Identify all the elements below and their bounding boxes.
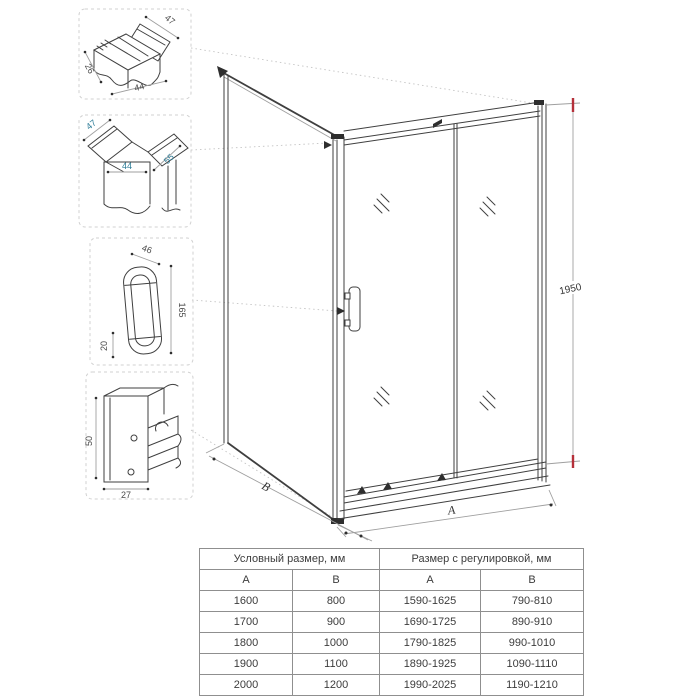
cell-b: 1100 xyxy=(293,654,380,675)
dim-44-top: 44 xyxy=(133,81,145,93)
size-table: Условный размер, мм Размер с регулировко… xyxy=(199,548,584,696)
cell-a-adj: 1690-1725 xyxy=(380,612,481,633)
cell-b: 1200 xyxy=(293,675,380,696)
header-nominal-size: Условный размер, мм xyxy=(200,549,380,570)
dim-47-top: 47 xyxy=(163,13,177,27)
cell-a-adj: 1590-1625 xyxy=(380,591,481,612)
dim-20: 20 xyxy=(99,341,109,351)
dim-27: 27 xyxy=(121,490,131,500)
cell-b-adj: 1090-1110 xyxy=(481,654,584,675)
wall-profile-right xyxy=(538,104,546,482)
door-handle xyxy=(337,287,360,331)
bottom-sill xyxy=(338,462,550,519)
cell-a-adj: 1790-1825 xyxy=(380,633,481,654)
cell-a-adj: 1890-1925 xyxy=(380,654,481,675)
height-dimension: 1950 xyxy=(546,98,585,468)
dim-47-left: 47 xyxy=(84,118,98,132)
label-b: B xyxy=(259,479,273,495)
table-row: 1600 800 1590-1625 790-810 xyxy=(200,591,584,612)
col-header-a-adjusted: A xyxy=(380,570,481,591)
arrow-corner-post xyxy=(324,141,332,149)
detail-box-top-profile: 47 26 44 xyxy=(79,9,191,99)
cell-a: 2000 xyxy=(200,675,293,696)
side-panel xyxy=(217,66,338,523)
table-row: 1900 1100 1890-1925 1090-1110 xyxy=(200,654,584,675)
rail-end-cap xyxy=(534,100,544,105)
table-row: 1800 1000 1790-1825 990-1010 xyxy=(200,633,584,654)
dim-46: 46 xyxy=(141,243,154,256)
label-a: A xyxy=(446,503,457,518)
col-header-b-adjusted: B xyxy=(481,570,584,591)
table-row: 1700 900 1690-1725 890-910 xyxy=(200,612,584,633)
dim-165: 165 xyxy=(177,302,187,317)
glass-marks xyxy=(374,194,495,410)
detail-box-wall-profile: 50 27 xyxy=(84,372,193,500)
header-adjusted-size: Размер с регулировкой, мм xyxy=(380,549,584,570)
cell-b-adj: 1190-1210 xyxy=(481,675,584,696)
cell-a: 1900 xyxy=(200,654,293,675)
corner-post xyxy=(324,134,344,524)
cell-b-adj: 790-810 xyxy=(481,591,584,612)
arrow-top-left xyxy=(217,66,228,78)
col-header-b-nominal: B xyxy=(293,570,380,591)
table-row: 2000 1200 1990-2025 1190-1210 xyxy=(200,675,584,696)
dim-50: 50 xyxy=(84,436,94,446)
cell-a: 1800 xyxy=(200,633,293,654)
detail-box-handle: 46 165 20 xyxy=(90,238,193,365)
col-header-a-nominal: A xyxy=(200,570,293,591)
detail-box-corner-profile: 47 44 55 xyxy=(79,115,191,227)
cell-b: 900 xyxy=(293,612,380,633)
cell-a: 1700 xyxy=(200,612,293,633)
cell-a: 1600 xyxy=(200,591,293,612)
cell-b: 1000 xyxy=(293,633,380,654)
depth-dimension-b: B xyxy=(206,444,372,541)
dim-44-mid: 44 xyxy=(122,161,132,171)
roller xyxy=(357,486,366,494)
cell-b-adj: 990-1010 xyxy=(481,633,584,654)
leader-lines xyxy=(191,48,538,516)
post-top-cap xyxy=(331,134,344,139)
cell-a-adj: 1990-2025 xyxy=(380,675,481,696)
technical-drawing-page: 47 26 44 47 44 xyxy=(0,0,700,700)
sliding-doors xyxy=(337,124,538,491)
cell-b: 800 xyxy=(293,591,380,612)
cell-b-adj: 890-910 xyxy=(481,612,584,633)
main-drawing: 1950 A B xyxy=(206,66,585,541)
top-rail xyxy=(344,100,544,145)
